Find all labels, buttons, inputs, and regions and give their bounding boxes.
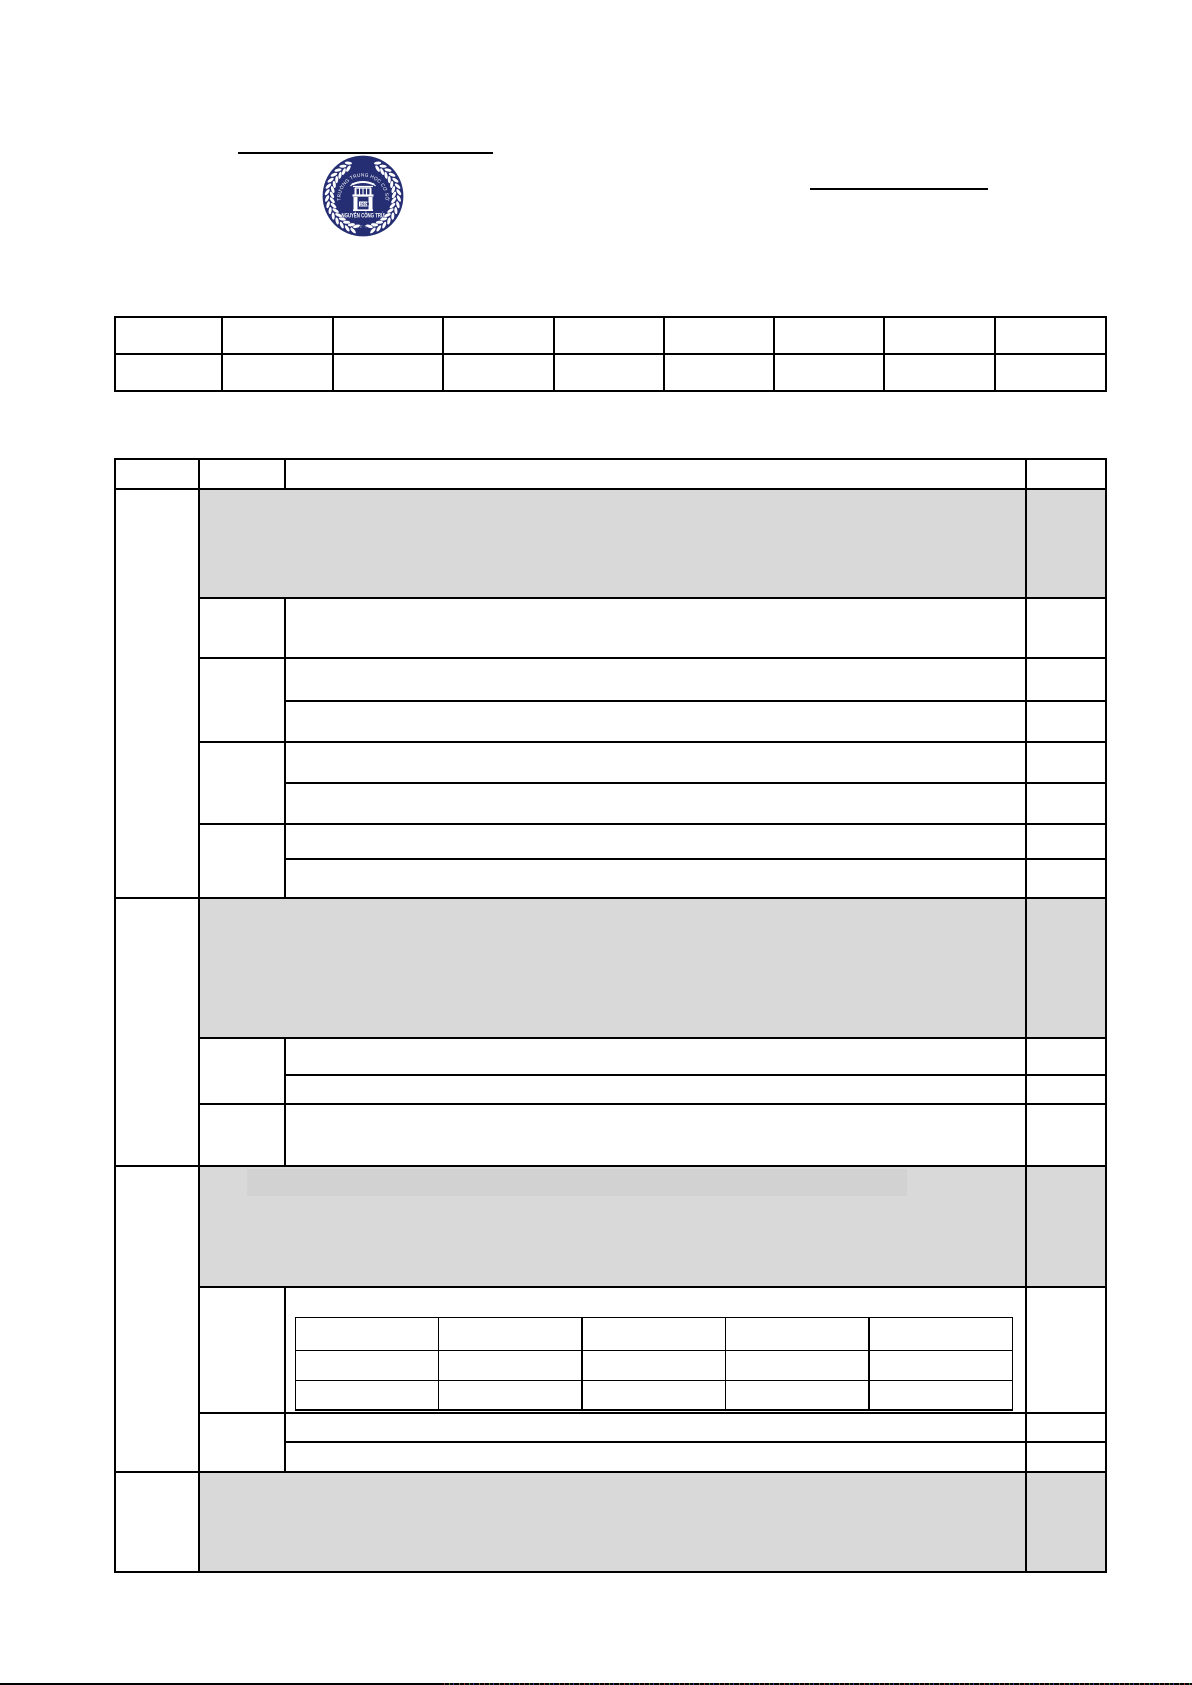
svg-text:NGUYỄN CÔNG TRỨ: NGUYỄN CÔNG TRỨ <box>342 212 386 220</box>
svg-text:1920: 1920 <box>360 202 370 207</box>
svg-text:QUẬN 2 - TP.HCM: QUẬN 2 - TP.HCM <box>351 224 376 229</box>
